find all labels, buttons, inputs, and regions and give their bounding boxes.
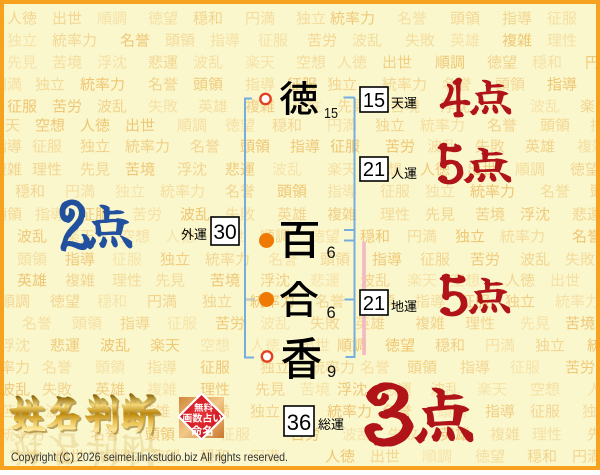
svg-text:30: 30: [213, 221, 236, 244]
svg-text:6: 6: [327, 304, 336, 322]
svg-text:9: 9: [327, 363, 336, 381]
svg-text:15: 15: [363, 90, 385, 112]
svg-text:Copyright (C) 2026 seimei.link: Copyright (C) 2026 seimei.linkstudio.biz…: [11, 450, 288, 464]
svg-text:21: 21: [363, 293, 385, 315]
svg-text:6: 6: [327, 244, 336, 262]
svg-text:15: 15: [324, 105, 338, 122]
svg-text:21: 21: [363, 159, 385, 181]
svg-text:36: 36: [287, 410, 311, 435]
